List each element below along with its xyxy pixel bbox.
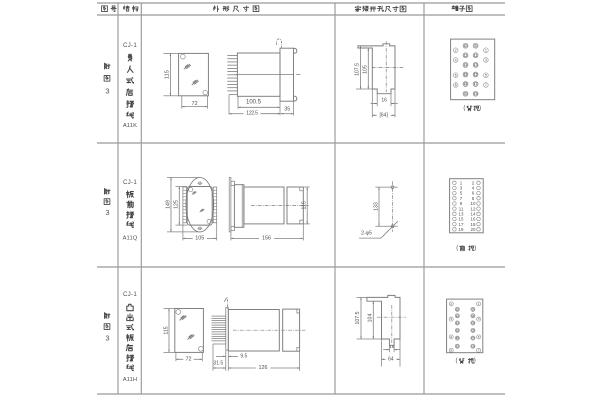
svg-text:19: 19 <box>459 227 464 232</box>
svg-text:115: 115 <box>302 201 308 209</box>
svg-text:6: 6 <box>455 73 457 77</box>
svg-text:12: 12 <box>464 53 468 57</box>
svg-text:3: 3 <box>478 317 480 321</box>
svg-text:3: 3 <box>485 58 487 62</box>
svg-text:): ) <box>479 106 481 112</box>
svg-text:(: ( <box>456 358 458 364</box>
svg-text:20: 20 <box>471 227 476 232</box>
svg-text:15: 15 <box>474 73 478 77</box>
svg-text:5: 5 <box>478 335 480 339</box>
svg-text:18: 18 <box>464 82 468 86</box>
svg-text:156: 156 <box>262 235 271 241</box>
svg-text:100.5: 100.5 <box>246 100 262 106</box>
svg-text:5: 5 <box>485 73 487 77</box>
svg-text:105: 105 <box>363 65 369 74</box>
svg-text:16: 16 <box>456 329 460 333</box>
svg-text:2: 2 <box>450 302 452 306</box>
svg-text:16: 16 <box>464 73 468 77</box>
svg-text:1: 1 <box>485 48 487 52</box>
svg-text:13: 13 <box>471 321 475 325</box>
svg-text:12: 12 <box>456 314 460 318</box>
svg-text:64: 64 <box>388 356 394 362</box>
svg-text:9: 9 <box>475 44 477 48</box>
svg-text:4: 4 <box>450 317 452 321</box>
svg-text:115: 115 <box>164 70 170 79</box>
svg-text:18: 18 <box>456 336 460 340</box>
svg-text:A11H: A11H <box>123 377 137 383</box>
svg-text:7: 7 <box>478 348 480 352</box>
svg-text:107.5: 107.5 <box>355 311 361 324</box>
svg-text:104: 104 <box>368 314 374 323</box>
svg-text:16: 16 <box>389 344 395 349</box>
svg-text:6: 6 <box>450 335 452 339</box>
svg-text:1: 1 <box>478 302 480 306</box>
svg-text:133: 133 <box>373 202 379 211</box>
svg-text:3: 3 <box>105 334 109 343</box>
svg-text:A11K: A11K <box>123 123 137 129</box>
svg-text:A11Q: A11Q <box>123 236 138 242</box>
svg-text:(: ( <box>463 106 465 112</box>
svg-text:): ) <box>474 358 476 364</box>
svg-text:9: 9 <box>472 307 474 311</box>
svg-text:2-φ5: 2-φ5 <box>361 231 372 237</box>
svg-text:19: 19 <box>471 344 475 348</box>
svg-text:7: 7 <box>485 83 487 87</box>
svg-text:20: 20 <box>464 92 468 96</box>
svg-text:115: 115 <box>163 326 169 334</box>
svg-text:17: 17 <box>471 336 475 340</box>
svg-text:13: 13 <box>474 63 478 67</box>
svg-text:8: 8 <box>455 83 457 87</box>
svg-text:126: 126 <box>259 365 268 371</box>
svg-text:105: 105 <box>195 235 204 241</box>
svg-text:125: 125 <box>174 200 180 209</box>
svg-text:10: 10 <box>456 307 460 311</box>
svg-text:122.5: 122.5 <box>246 111 258 117</box>
svg-text:2: 2 <box>455 48 457 52</box>
svg-text:8: 8 <box>450 348 452 352</box>
svg-text:3: 3 <box>105 208 109 217</box>
svg-text:31.5: 31.5 <box>213 360 223 366</box>
svg-text:72: 72 <box>192 101 198 107</box>
svg-text:17: 17 <box>474 82 478 86</box>
svg-text:(: ( <box>456 246 458 252</box>
svg-text:15: 15 <box>471 329 475 333</box>
svg-text:9.5: 9.5 <box>240 354 247 360</box>
svg-text:35: 35 <box>284 107 290 113</box>
svg-text:[64]: [64] <box>380 112 389 118</box>
svg-text:CJ-1: CJ-1 <box>123 179 137 186</box>
svg-text:19: 19 <box>474 92 478 96</box>
svg-text:10: 10 <box>464 44 468 48</box>
svg-text:): ) <box>474 246 476 252</box>
svg-text:14: 14 <box>456 321 460 325</box>
svg-text:107.5: 107.5 <box>355 63 361 76</box>
svg-text:CJ-1: CJ-1 <box>123 291 137 298</box>
svg-text:4: 4 <box>455 58 457 62</box>
svg-text:11: 11 <box>474 53 478 57</box>
svg-text:149: 149 <box>165 200 171 209</box>
svg-text:16: 16 <box>381 98 387 104</box>
svg-text:14: 14 <box>464 63 468 67</box>
svg-text:72: 72 <box>186 356 192 362</box>
svg-text:CJ-1: CJ-1 <box>123 42 137 49</box>
svg-text:11: 11 <box>471 314 474 318</box>
svg-text:3: 3 <box>105 86 109 95</box>
svg-text:20: 20 <box>456 344 460 348</box>
